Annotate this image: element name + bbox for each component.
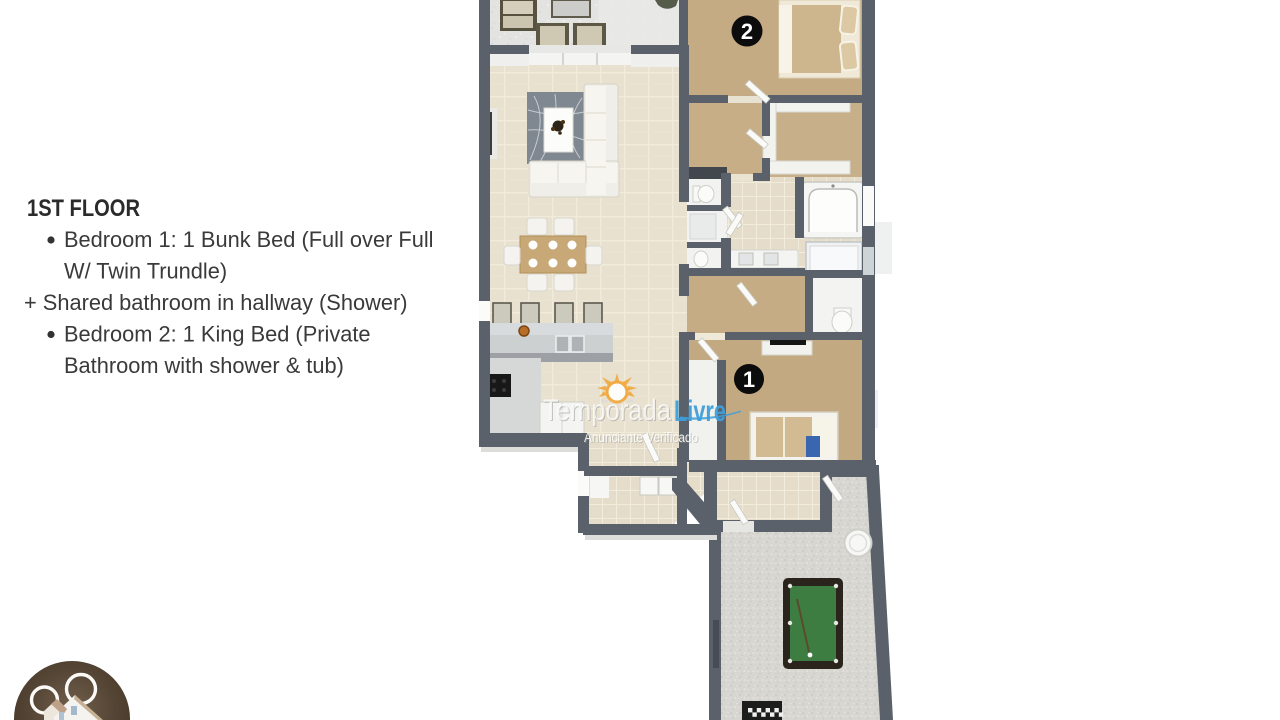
svg-text:Bedroom 2: 1 King Bed (Private: Bedroom 2: 1 King Bed (Private	[64, 322, 371, 347]
svg-text:+ Shared bathroom in hallway (: + Shared bathroom in hallway (Shower)	[24, 290, 407, 315]
svg-text:1ST FLOOR: 1ST FLOOR	[27, 195, 140, 222]
svg-text:Bedroom 1: 1 Bunk Bed (Full ov: Bedroom 1: 1 Bunk Bed (Full over Full	[64, 227, 434, 252]
svg-text:1: 1	[743, 367, 755, 392]
svg-text:Bathroom with shower & tub): Bathroom with shower & tub)	[64, 353, 344, 378]
svg-text:Livre: Livre	[674, 395, 726, 428]
svg-text:2: 2	[741, 19, 753, 44]
svg-text:Temporada: Temporada	[543, 394, 671, 427]
svg-text:W/ Twin Trundle): W/ Twin Trundle)	[64, 259, 227, 284]
svg-text:Anunciante Verificado: Anunciante Verificado	[584, 430, 698, 445]
